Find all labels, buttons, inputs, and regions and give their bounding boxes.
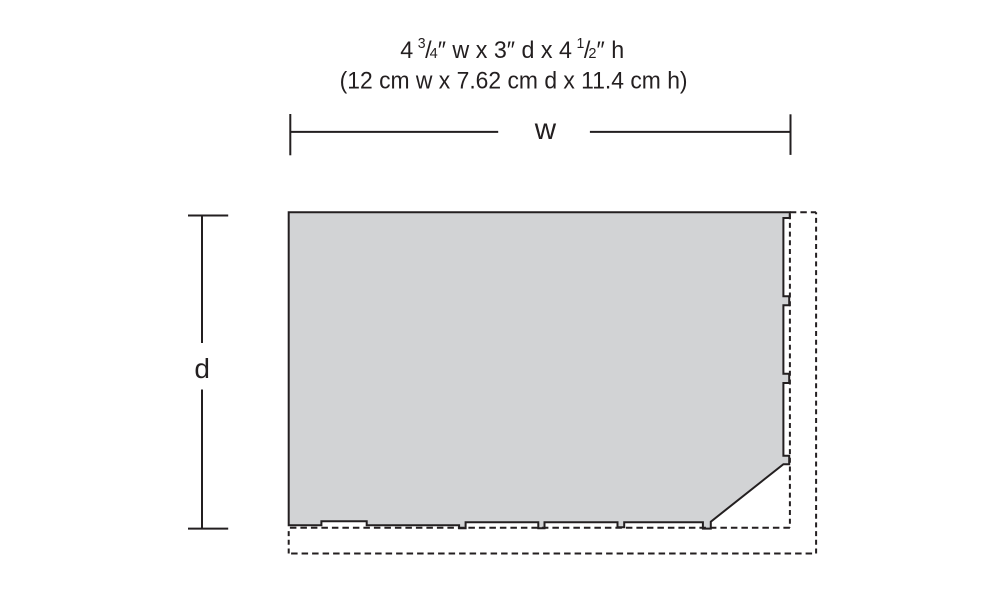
svg-text:4 3/4″ w x 3″ d x 4 1/2″ h: 4 3/4″ w x 3″ d x 4 1/2″ h: [400, 36, 624, 64]
svg-text:(12 cm w x 7.62 cm d x 11.4 cm: (12 cm w x 7.62 cm d x 11.4 cm h): [340, 67, 688, 94]
svg-text:w: w: [534, 113, 557, 146]
svg-text:d: d: [194, 353, 210, 384]
